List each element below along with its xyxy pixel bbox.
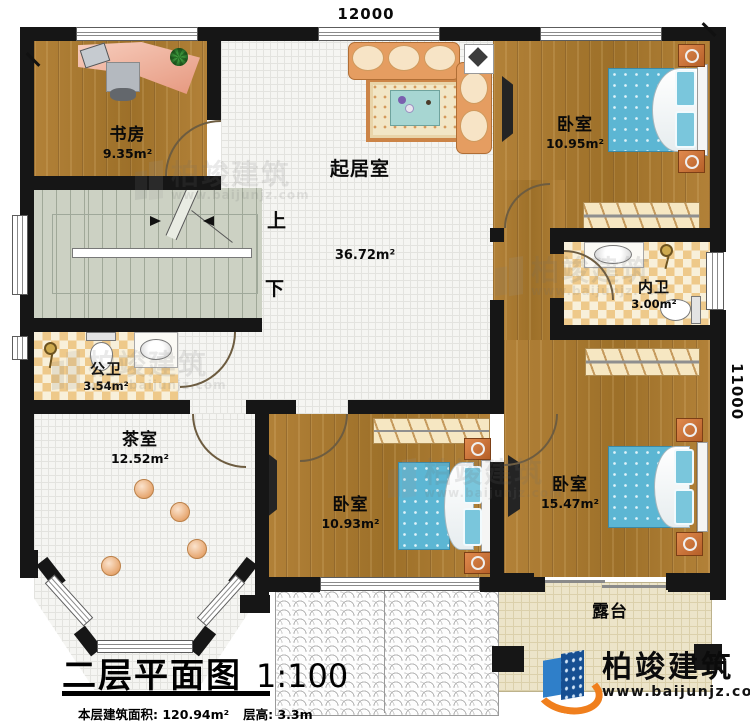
watermark-name: 柏竣建筑 [531, 256, 670, 285]
watermark-name: 柏竣建筑 [88, 350, 227, 379]
window-stairs [12, 215, 28, 295]
table-dot [426, 100, 431, 105]
wall-bedroom-top-bottom-1 [490, 228, 504, 242]
terrace-sliding-door-1 [545, 580, 605, 583]
label-study: 书房 9.35m² [70, 125, 185, 162]
bedroom-top-name: 卧室 [515, 115, 635, 136]
tea-room-area: 12.52m² [85, 451, 195, 467]
wall-inner-bath-left-2 [550, 298, 564, 325]
floor-plan: 上 下 [0, 0, 750, 726]
wall-living-bottom-2 [348, 400, 504, 414]
wall-bottom-1 [255, 577, 320, 592]
wall-bedroom-top-bottom-2 [550, 228, 726, 242]
window-bedroom-top [540, 27, 662, 41]
window-study [76, 27, 198, 41]
toilet-tank-public [86, 332, 116, 341]
wall-right-bottom [710, 310, 726, 600]
window-public-bath [12, 336, 28, 360]
watermark-logo-icon [495, 256, 525, 298]
window-living [318, 27, 440, 41]
wall-living-bottom-1 [262, 400, 296, 414]
wall-tea-top-2 [246, 400, 262, 414]
terrace-pillar-2 [666, 573, 712, 590]
watermark-url: www.baijunjz.com [531, 285, 670, 298]
wardrobe-bedroom-right [585, 348, 700, 376]
wall-inner-bath-bottom [550, 325, 726, 340]
tea-stool-2 [170, 502, 190, 522]
title-underline [62, 691, 270, 696]
plan-title: 二层平面图 [62, 648, 242, 697]
tea-room-name: 茶室 [85, 430, 195, 451]
watermark: 柏竣建筑www.baijunjz.com [388, 458, 563, 500]
brand-name: 柏竣建筑 [602, 653, 750, 683]
headboard-bedroom-right [697, 442, 708, 532]
title-block: 二层平面图 1:100 [62, 648, 348, 697]
label-bedroom-top: 卧室 10.95m² [515, 115, 635, 152]
watermark-name: 柏竣建筑 [171, 160, 310, 189]
watermark-logo-icon [135, 160, 165, 202]
window-inner-bath [706, 252, 724, 310]
stair-up-label: 上 [267, 206, 286, 233]
wall-right-top [710, 27, 726, 252]
watermark-logo-icon [52, 350, 82, 392]
terrace-pillar-3 [492, 646, 524, 672]
label-living-area: 36.72m² [305, 248, 425, 264]
wall-top-3 [440, 27, 540, 41]
pillow-bedroom-right-2 [674, 489, 694, 525]
sofa-arm-cushion-1 [460, 72, 488, 104]
inner-bath-area: 3.00m² [608, 297, 700, 311]
tea-stool-3 [187, 539, 207, 559]
study-name: 书房 [70, 125, 185, 146]
table-flowers [398, 96, 406, 104]
watermark-url: www.baijunjz.com [424, 487, 563, 500]
label-living-name: 起居室 [300, 158, 420, 182]
sofa-arm-cushion-2 [460, 110, 488, 142]
nightstand-top-2 [678, 150, 705, 173]
terrace-name: 露台 [572, 602, 648, 623]
label-tea-room: 茶室 12.52m² [85, 430, 195, 467]
desk-chair-back [110, 88, 136, 101]
wall-hallway [490, 300, 504, 400]
wall-study-right [207, 41, 221, 120]
window-bedroom-mid [320, 577, 480, 591]
bay-corner-right [240, 595, 270, 613]
watermark-url: www.baijunjz.com [171, 189, 310, 202]
wall-tea-right [255, 414, 269, 604]
sofa-cushion-3 [424, 45, 456, 71]
nightstand-mid-2 [464, 552, 491, 574]
tea-stool-1 [134, 479, 154, 499]
headboard-bedroom-top [697, 64, 708, 156]
stair-arrow-left [150, 216, 161, 226]
watermark: 柏竣建筑www.baijunjz.com [52, 350, 227, 392]
table-flowers-2 [405, 104, 414, 113]
watermark: 柏竣建筑www.baijunjz.com [495, 256, 670, 298]
dimension-top: 12000 [316, 5, 416, 23]
label-terrace: 露台 [572, 602, 648, 623]
pillow-bedroom-top-2 [675, 111, 696, 148]
stair-handrail [72, 248, 252, 258]
wall-tea-top-1 [20, 400, 190, 414]
brand-logo: 柏竣建筑 www.baijunjz.com [538, 650, 750, 704]
stair-down-label: 下 [265, 274, 284, 301]
floor-area-info: 本层建筑面积: 120.94m² [78, 704, 229, 723]
wall-top-2 [198, 27, 318, 41]
tv-bedroom-top [502, 76, 513, 142]
tea-stool-4 [101, 556, 121, 576]
stair-arrow-right [203, 216, 214, 226]
porch-roof-seam [384, 589, 385, 713]
living-area: 36.72m² [305, 248, 425, 264]
wall-tea-left-corner [20, 550, 38, 578]
plan-scale: 1:100 [256, 657, 348, 695]
nightstand-right-2 [676, 532, 703, 556]
watermark: 柏竣建筑www.baijunjz.com [135, 160, 310, 202]
living-name: 起居室 [300, 158, 420, 182]
brand-url: www.baijunjz.com [602, 684, 750, 701]
brand-text: 柏竣建筑 www.baijunjz.com [602, 653, 750, 701]
terrace-pillar-1 [494, 573, 534, 590]
floor-height-info: 层高: 3.3m [243, 704, 313, 723]
nightstand-right-1 [676, 418, 703, 442]
watermark-logo-icon [388, 458, 418, 500]
sofa-cushion-1 [352, 45, 384, 71]
sofa-cushion-2 [388, 45, 420, 71]
wall-stairs-bottom [20, 318, 262, 332]
pillow-bedroom-mid-2 [463, 508, 482, 546]
label-bedroom-mid: 卧室 10.93m² [298, 495, 403, 532]
dimension-right: 11000 [726, 352, 746, 432]
potted-plant [170, 48, 188, 66]
wardrobe-bedroom-top [583, 202, 700, 230]
coffee-table [390, 90, 440, 126]
pillow-bedroom-right-1 [674, 449, 694, 485]
brand-logo-icon [538, 650, 594, 704]
wall-inner-bath-left-1 [550, 242, 564, 254]
watermark-name: 柏竣建筑 [424, 458, 563, 487]
bedroom-top-area: 10.95m² [515, 136, 635, 152]
plan-info: 本层建筑面积: 120.94m² 层高: 3.3m [78, 704, 313, 723]
terrace-sliding-door-2 [602, 585, 668, 588]
pillow-bedroom-top-1 [675, 70, 696, 107]
nightstand-top-1 [678, 44, 705, 67]
bedroom-mid-area: 10.93m² [298, 516, 403, 532]
watermark-url: www.baijunjz.com [88, 379, 227, 392]
